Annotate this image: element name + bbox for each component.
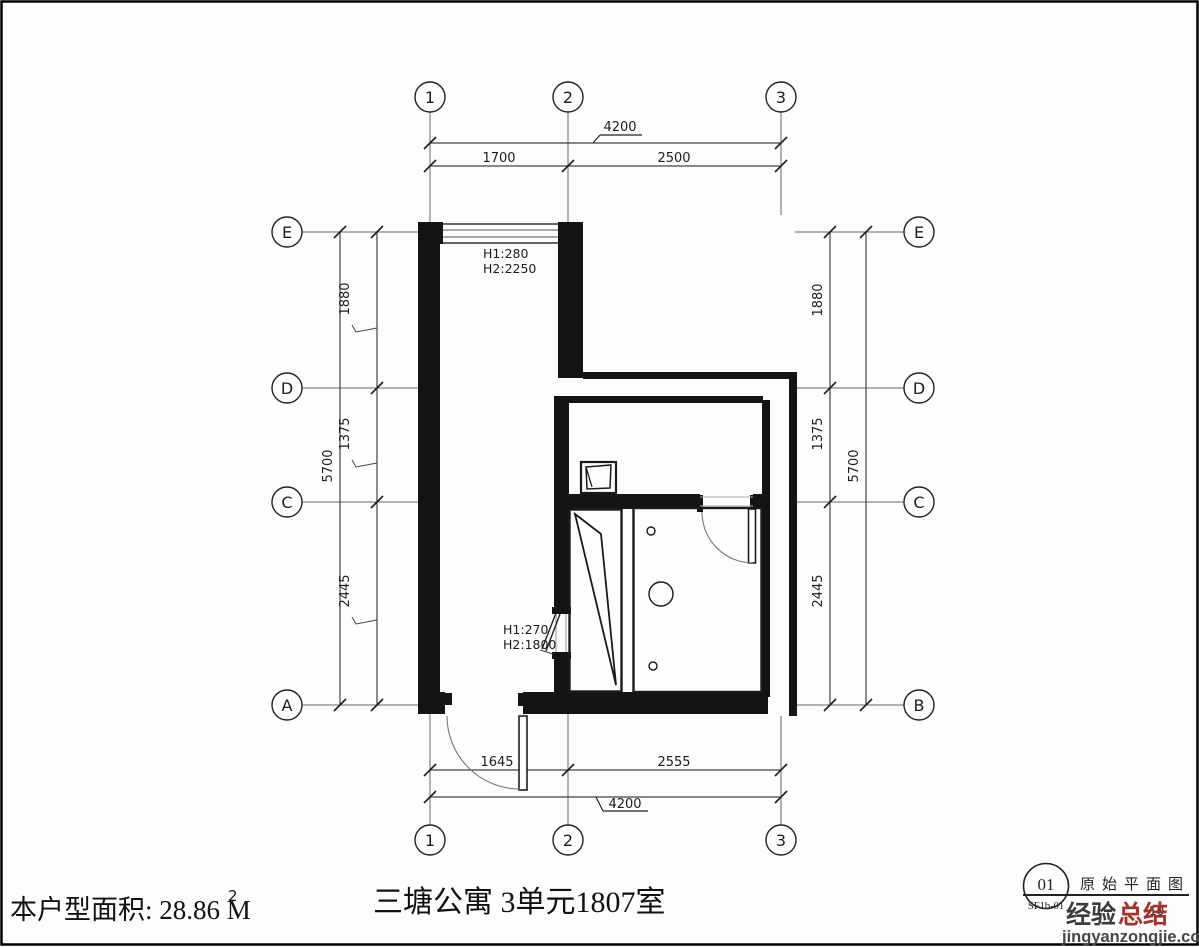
wall-bathroom-north — [554, 494, 700, 509]
annotation-mid-window-h1: H1:270 — [503, 622, 548, 637]
entry-hinge-cap — [518, 693, 528, 706]
drain-small-bottom — [649, 662, 657, 670]
entry-door — [447, 716, 527, 790]
grid-bubble-rowC-left: C — [272, 487, 302, 517]
dim-top-overall: 4200 — [603, 120, 636, 135]
grid-label: B — [914, 696, 925, 715]
watermark-logo-red: 总结 — [1118, 901, 1168, 929]
dim-bottom-overall: 4200 — [608, 797, 641, 812]
window-top — [443, 222, 558, 244]
grid-bubble-rowD-left: D — [272, 373, 302, 403]
annotation-mid-window-h2: H2:1800 — [503, 637, 556, 652]
area-label: 本户型面积: 28.86 M — [10, 895, 251, 925]
dim-left-overall: 5700 — [321, 449, 336, 482]
floor-plan-drawing: 1 2 3 1 2 3 E D C A E D C B 4200 1700 25… — [0, 0, 1199, 947]
height-annotations: H1:280 H2:2250 H1:270 H2:1800 — [483, 246, 556, 654]
entry-jamb-cap — [444, 693, 452, 705]
dim-top-seg2: 2500 — [657, 151, 690, 166]
dim-right-seg1: 1880 — [811, 283, 826, 316]
grid-bubble-rowE-left: E — [272, 217, 302, 247]
grid-label: E — [914, 223, 924, 242]
grid-label: C — [281, 493, 292, 512]
grid-label: E — [282, 223, 292, 242]
wall-step-d — [583, 372, 797, 379]
grid-label: D — [281, 379, 293, 398]
drawing-code: SF1b-01 — [1028, 901, 1064, 912]
wall-bathroom-east — [762, 400, 770, 697]
dim-top-seg1: 1700 — [482, 151, 515, 166]
grid-label: 2 — [563, 831, 573, 850]
grid-bubble-col2-bottom: 2 — [553, 825, 583, 855]
drain-large — [649, 582, 673, 606]
grid-bubble-rowE-right: E — [904, 217, 934, 247]
drawing-name: 原始平面图 — [1080, 876, 1190, 893]
watermark-logo-black: 经验 — [1066, 900, 1116, 929]
grid-label: D — [913, 379, 925, 398]
grid-label: 1 — [425, 831, 435, 850]
watermark-site: jingyanzongjie.com — [1061, 928, 1199, 946]
grid-bubble-rowC-right: C — [904, 487, 934, 517]
entry-door-leaf — [519, 716, 527, 790]
grid-label: 1 — [425, 88, 435, 107]
grid-bubble-rowA-left: A — [272, 690, 302, 720]
title-block: 01 SF1b-01 原始平面图 10 经验 总结 jingyanzongjie… — [1023, 864, 1199, 947]
wall-bottom-right — [523, 692, 768, 714]
footer: 本户型面积: 28.86 M 2 三塘公寓 3单元1807室 — [10, 886, 666, 925]
grid-bubble-col1-top: 1 — [415, 82, 445, 112]
dim-left-seg3: 2445 — [338, 574, 353, 607]
drawing-number: 01 — [1038, 875, 1055, 894]
slope-wedge — [575, 514, 616, 685]
dim-bottom-seg2: 2555 — [657, 755, 690, 770]
dim-right-seg3: 2445 — [811, 574, 826, 607]
bath-door-jamb-left-cap — [697, 495, 703, 512]
dim-bottom-seg1: 1645 — [480, 755, 513, 770]
bathroom-door-swing-arc — [702, 512, 753, 563]
grid-label: C — [913, 493, 924, 512]
annotation-top-window-h2: H2:2250 — [483, 261, 536, 276]
shower-shaft — [570, 510, 622, 692]
drain-small-top — [647, 527, 655, 535]
duct-box — [581, 462, 616, 493]
wall-interior-horizontal — [554, 396, 763, 403]
grid-bubble-col2-top: 2 — [553, 82, 583, 112]
bathroom-outline — [634, 508, 762, 692]
grid-bubble-col1-bottom: 1 — [415, 825, 445, 855]
window-jamb-cap-lower — [552, 652, 571, 659]
grid-bubble-col3-bottom: 3 — [766, 825, 796, 855]
annotation-top-window-h1: H1:280 — [483, 246, 528, 261]
bathroom — [634, 508, 762, 692]
grid-label: A — [282, 696, 293, 715]
entry-door-swing-arc — [447, 716, 520, 789]
wall-bottom-left — [418, 692, 445, 714]
grid-bubble-col3-top: 3 — [766, 82, 796, 112]
grid-bubble-rowD-right: D — [904, 373, 934, 403]
floor-plan-screenshot: 1 2 3 1 2 3 E D C A E D C B 4200 1700 25… — [0, 0, 1199, 947]
area-superscript: 2 — [228, 887, 238, 905]
window-jamb-cap-upper — [552, 607, 571, 614]
bathroom-door-leaf — [749, 509, 756, 563]
wall-left-exterior — [418, 222, 440, 714]
dim-right-overall: 5700 — [847, 449, 862, 482]
wall-top-left-jamb — [418, 222, 443, 244]
wall-right-exterior — [789, 372, 797, 716]
dim-left-seg2: 1375 — [338, 417, 353, 450]
plan-title: 三塘公寓 3单元1807室 — [373, 886, 666, 919]
grid-label: 2 — [563, 88, 573, 107]
grid-label: 3 — [776, 831, 786, 850]
dim-left-seg1: 1880 — [338, 282, 353, 315]
dim-right-seg2: 1375 — [811, 417, 826, 450]
grid-bubble-rowB-right: B — [904, 690, 934, 720]
grid-label: 3 — [776, 88, 786, 107]
wall-top-right — [558, 222, 583, 378]
